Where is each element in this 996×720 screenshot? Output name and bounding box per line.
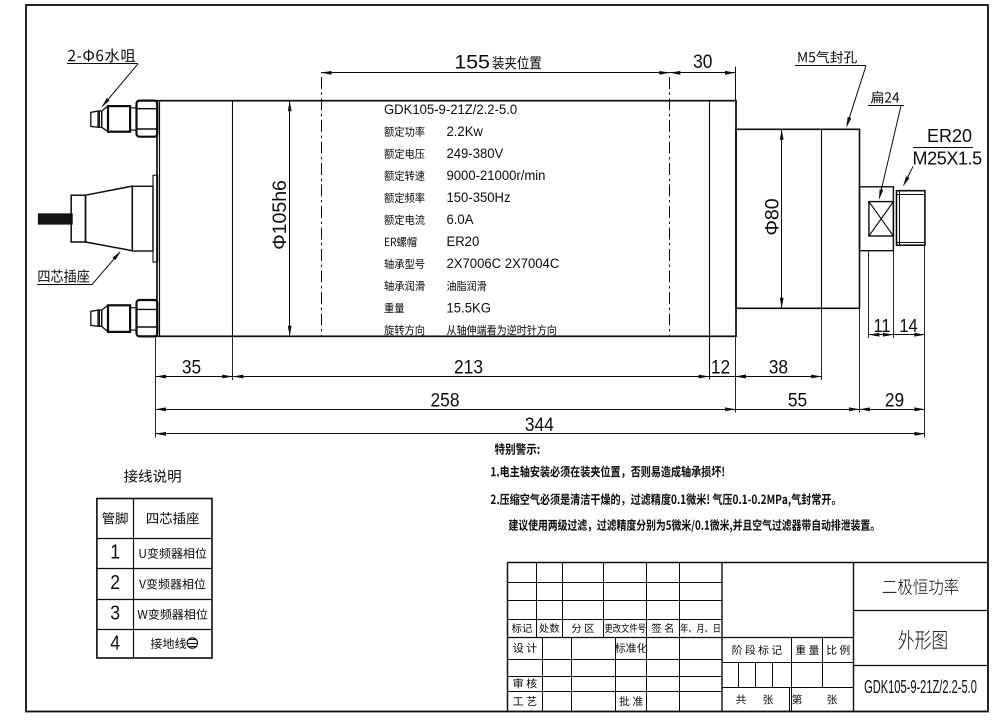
svg-text:2: 2 [110, 572, 120, 595]
svg-text:3: 3 [110, 602, 120, 625]
svg-text:55: 55 [788, 388, 807, 410]
svg-text:12: 12 [711, 356, 730, 378]
svg-text:15.5KG: 15.5KG [447, 300, 491, 315]
svg-text:344: 344 [525, 413, 554, 435]
svg-text:M25X1.5: M25X1.5 [913, 149, 983, 169]
svg-text:ER20: ER20 [447, 234, 480, 249]
svg-text:14: 14 [899, 315, 918, 336]
svg-text:11: 11 [873, 315, 890, 336]
svg-text:Φ105h6: Φ105h6 [269, 180, 291, 250]
svg-text:GDK105-9-21Z/2.2-5.0: GDK105-9-21Z/2.2-5.0 [384, 102, 517, 117]
svg-text:GDK105-9-21Z/2.2-5.0: GDK105-9-21Z/2.2-5.0 [864, 677, 977, 698]
svg-text:Φ80: Φ80 [762, 198, 784, 235]
svg-text:35: 35 [182, 356, 201, 378]
svg-text:9000-21000r/min: 9000-21000r/min [447, 168, 546, 183]
svg-text:1: 1 [110, 541, 120, 564]
svg-text:155: 155 [454, 51, 490, 73]
svg-text:4: 4 [110, 632, 120, 655]
svg-text:2.2Kw: 2.2Kw [447, 124, 484, 139]
svg-text:150-350Hz: 150-350Hz [447, 190, 511, 205]
svg-text:213: 213 [454, 356, 483, 378]
svg-text:29: 29 [885, 388, 904, 410]
svg-text:6.0A: 6.0A [447, 212, 474, 227]
svg-text:ER20: ER20 [927, 126, 972, 146]
svg-text:258: 258 [431, 388, 460, 410]
svg-text:2X7006C 2X7004C: 2X7006C 2X7004C [447, 256, 560, 271]
svg-text:30: 30 [693, 50, 712, 72]
svg-text:249-380V: 249-380V [447, 146, 504, 161]
svg-text:38: 38 [769, 356, 788, 378]
